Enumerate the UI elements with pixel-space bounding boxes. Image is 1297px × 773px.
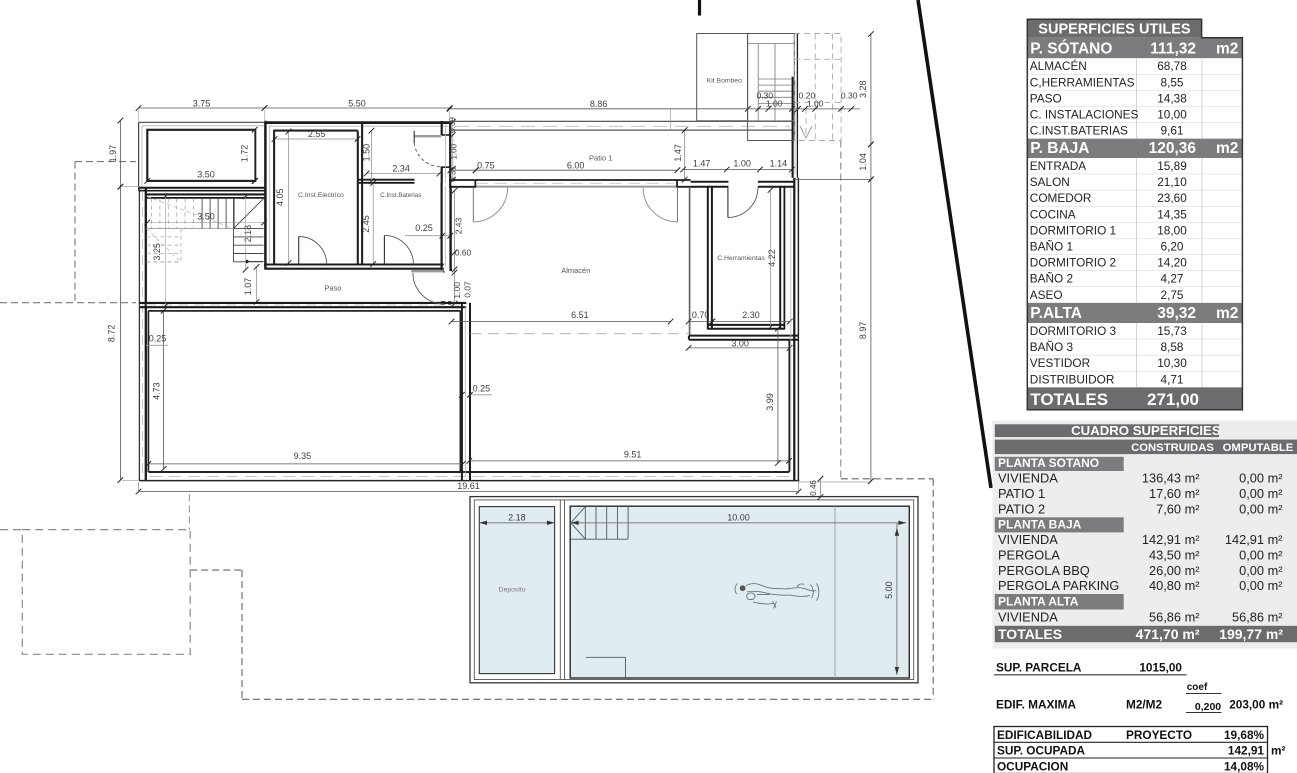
svg-text:SUP. OCUPADA: SUP. OCUPADA — [997, 744, 1086, 758]
svg-text:DISTRIBUIDOR: DISTRIBUIDOR — [1030, 372, 1115, 386]
svg-text:0.25: 0.25 — [149, 334, 167, 344]
svg-text:5.50: 5.50 — [348, 98, 366, 108]
svg-text:PERGOLA PARKING: PERGOLA PARKING — [998, 578, 1119, 593]
svg-text:TOTALES: TOTALES — [998, 626, 1062, 642]
svg-text:C.Inst.Electrico: C.Inst.Electrico — [298, 192, 344, 199]
svg-text:0.30: 0.30 — [841, 91, 858, 101]
svg-text:14,38: 14,38 — [1157, 91, 1187, 105]
svg-text:PATIO 2: PATIO 2 — [998, 501, 1045, 516]
svg-text:142,91: 142,91 — [1228, 744, 1265, 758]
svg-text:2.43: 2.43 — [453, 217, 463, 234]
svg-text:DORMITORIO 2: DORMITORIO 2 — [1030, 256, 1116, 270]
svg-text:4.22: 4.22 — [767, 249, 777, 267]
svg-text:1.47: 1.47 — [693, 158, 711, 168]
svg-text:4.05: 4.05 — [275, 188, 285, 206]
svg-text:40,80 m²: 40,80 m² — [1149, 578, 1200, 593]
svg-text:DORMITORIO 1: DORMITORIO 1 — [1030, 223, 1116, 237]
svg-text:2,75: 2,75 — [1161, 288, 1184, 302]
svg-text:VIVIENDA: VIVIENDA — [998, 471, 1058, 486]
svg-text:EDIF. MAXIMA: EDIF. MAXIMA — [996, 698, 1076, 712]
svg-text:471,70 m²: 471,70 m² — [1136, 626, 1200, 642]
svg-text:8.97: 8.97 — [858, 322, 868, 340]
svg-text:Almacén: Almacén — [561, 266, 590, 275]
svg-text:4,71: 4,71 — [1161, 372, 1184, 386]
svg-text:ASEO: ASEO — [1030, 288, 1063, 302]
svg-text:m2: m2 — [1216, 140, 1238, 157]
svg-text:1.00: 1.00 — [449, 143, 458, 159]
svg-text:0,00 m²: 0,00 m² — [1239, 471, 1283, 486]
svg-text:43,50 m²: 43,50 m² — [1149, 547, 1200, 562]
svg-text:56,86 m²: 56,86 m² — [1149, 610, 1200, 625]
svg-text:7,60 m²: 7,60 m² — [1156, 501, 1200, 516]
svg-text:3.25: 3.25 — [152, 243, 162, 261]
svg-text:10.00: 10.00 — [727, 512, 750, 522]
svg-text:26,00 m²: 26,00 m² — [1149, 563, 1200, 578]
svg-text:14,20: 14,20 — [1157, 256, 1187, 270]
svg-text:P. SÓTANO: P. SÓTANO — [1030, 39, 1112, 57]
svg-text:4,27: 4,27 — [1161, 272, 1184, 286]
svg-text:COCINA: COCINA — [1030, 207, 1076, 221]
svg-text:PLANTA BAJA: PLANTA BAJA — [998, 518, 1082, 532]
svg-text:1.47: 1.47 — [673, 144, 683, 162]
svg-text:Paso: Paso — [324, 284, 341, 293]
svg-text:C,HERRAMIENTAS: C,HERRAMIENTAS — [1030, 75, 1135, 89]
svg-text:2.30: 2.30 — [742, 310, 760, 320]
svg-text:2.45: 2.45 — [361, 215, 371, 233]
svg-text:SALON: SALON — [1030, 175, 1070, 189]
svg-text:56,86 m²: 56,86 m² — [1232, 610, 1283, 625]
svg-text:PATIO 1: PATIO 1 — [998, 486, 1045, 501]
svg-text:6.51: 6.51 — [571, 310, 589, 320]
svg-text:BAÑO 3: BAÑO 3 — [1030, 340, 1074, 354]
svg-text:P.ALTA: P.ALTA — [1030, 305, 1082, 322]
svg-text:0.70: 0.70 — [692, 310, 710, 320]
svg-text:m2: m2 — [1216, 305, 1238, 322]
svg-text:coef: coef — [1187, 682, 1208, 693]
svg-text:120,36: 120,36 — [1149, 140, 1197, 157]
svg-text:1.72: 1.72 — [240, 145, 250, 163]
svg-text:PROYECTO: PROYECTO — [1126, 728, 1192, 742]
svg-text:9.51: 9.51 — [624, 449, 642, 459]
svg-text:3.00: 3.00 — [731, 339, 749, 349]
svg-text:0.07: 0.07 — [462, 281, 472, 298]
svg-text:10,30: 10,30 — [1157, 356, 1187, 370]
svg-text:8,58: 8,58 — [1161, 340, 1184, 354]
svg-text:P. BAJA: P. BAJA — [1030, 140, 1089, 157]
svg-text:Deposito: Deposito — [499, 586, 526, 593]
svg-text:3.99: 3.99 — [765, 393, 775, 411]
svg-text:68,78: 68,78 — [1157, 59, 1187, 73]
svg-text:m²: m² — [1271, 744, 1285, 758]
svg-text:3.75: 3.75 — [193, 98, 211, 108]
svg-text:VESTIDOR: VESTIDOR — [1030, 356, 1090, 370]
svg-text:TOTALES: TOTALES — [1030, 390, 1108, 409]
svg-text:17,60 m²: 17,60 m² — [1149, 486, 1200, 501]
svg-text:SUP. PARCELA: SUP. PARCELA — [996, 661, 1082, 675]
svg-text:203,00 m²: 203,00 m² — [1229, 698, 1283, 712]
svg-text:1015,00: 1015,00 — [1139, 661, 1182, 675]
svg-text:5.00: 5.00 — [884, 581, 894, 599]
svg-text:EDIFICABILIDAD: EDIFICABILIDAD — [997, 728, 1093, 742]
svg-text:2.18: 2.18 — [508, 512, 526, 522]
svg-text:39,32: 39,32 — [1157, 305, 1196, 322]
svg-text:0.60: 0.60 — [455, 248, 472, 258]
svg-text:C.Herramientas: C.Herramientas — [717, 255, 765, 262]
svg-text:0,00 m²: 0,00 m² — [1239, 486, 1283, 501]
svg-text:ALMACÉN: ALMACÉN — [1030, 59, 1087, 73]
svg-text:VIVIENDA: VIVIENDA — [998, 532, 1058, 547]
svg-text:18,00: 18,00 — [1157, 223, 1187, 237]
svg-text:8.72: 8.72 — [107, 325, 117, 343]
svg-text:0.25: 0.25 — [473, 384, 491, 394]
svg-text:23,60: 23,60 — [1157, 191, 1187, 205]
svg-text:111,32: 111,32 — [1150, 40, 1196, 57]
svg-text:2.18: 2.18 — [243, 225, 253, 243]
svg-text:PERGOLA BBQ: PERGOLA BBQ — [998, 563, 1090, 578]
svg-text:0.25: 0.25 — [415, 223, 433, 233]
svg-text:C.INST.BATERIAS: C.INST.BATERIAS — [1030, 124, 1128, 138]
svg-text:VIVIENDA: VIVIENDA — [998, 610, 1058, 625]
svg-text:8,55: 8,55 — [1161, 75, 1184, 89]
svg-text:1.00: 1.00 — [766, 99, 783, 109]
svg-text:19,68%: 19,68% — [1224, 728, 1265, 742]
svg-text:PLANTA SOTANO: PLANTA SOTANO — [998, 456, 1099, 470]
svg-text:C. INSTALACIONES: C. INSTALACIONES — [1030, 108, 1139, 122]
svg-text:PASO: PASO — [1030, 91, 1062, 105]
svg-text:0,00 m²: 0,00 m² — [1239, 578, 1283, 593]
svg-text:1.04: 1.04 — [858, 153, 868, 171]
svg-text:DORMITORIO 3: DORMITORIO 3 — [1030, 324, 1117, 338]
svg-text:0,200: 0,200 — [1195, 701, 1221, 713]
svg-text:4.73: 4.73 — [151, 382, 161, 400]
svg-text:15,73: 15,73 — [1157, 324, 1187, 338]
svg-text:CUADRO SUPERFICIES: CUADRO SUPERFICIES — [1071, 423, 1221, 438]
svg-text:ENTRADA: ENTRADA — [1030, 159, 1087, 173]
svg-text:C.Inst.Baterias: C.Inst.Baterias — [380, 192, 421, 199]
svg-text:0.75: 0.75 — [477, 160, 495, 170]
svg-text:0,00 m²: 0,00 m² — [1239, 563, 1283, 578]
svg-text:0,00 m²: 0,00 m² — [1239, 547, 1283, 562]
svg-text:M2/M2: M2/M2 — [1126, 698, 1162, 712]
svg-text:Patio 1: Patio 1 — [589, 153, 612, 162]
svg-text:CONSTRUIDAS: CONSTRUIDAS — [1131, 442, 1214, 454]
svg-text:1.00: 1.00 — [452, 282, 462, 299]
svg-text:m2: m2 — [1216, 40, 1238, 57]
svg-text:21,10: 21,10 — [1157, 175, 1187, 189]
svg-text:1.14: 1.14 — [770, 158, 788, 168]
svg-text:142,91 m²: 142,91 m² — [1225, 532, 1283, 547]
svg-text:1.97: 1.97 — [108, 145, 118, 163]
svg-text:3.28: 3.28 — [858, 80, 868, 98]
svg-text:3.50: 3.50 — [197, 169, 215, 179]
svg-text:136,43 m²: 136,43 m² — [1142, 471, 1200, 486]
svg-text:6.00: 6.00 — [567, 160, 585, 170]
svg-text:3.50: 3.50 — [197, 211, 215, 221]
svg-text:15,89: 15,89 — [1157, 159, 1187, 173]
svg-text:1.07: 1.07 — [243, 278, 253, 296]
svg-text:1.00: 1.00 — [733, 158, 751, 168]
svg-text:1.00: 1.00 — [807, 99, 824, 109]
svg-text:199,77 m²: 199,77 m² — [1219, 626, 1283, 642]
svg-text:14,08%: 14,08% — [1224, 759, 1265, 773]
svg-text:Kit Bombeo: Kit Bombeo — [707, 78, 742, 85]
svg-text:PLANTA ALTA: PLANTA ALTA — [998, 595, 1079, 609]
svg-text:SUPERFICIES UTILES: SUPERFICIES UTILES — [1038, 22, 1191, 38]
svg-text:COMEDOR: COMEDOR — [1030, 191, 1092, 205]
svg-text:271,00: 271,00 — [1147, 390, 1199, 409]
svg-text:8.86: 8.86 — [590, 99, 608, 109]
svg-text:OMPUTABLE: OMPUTABLE — [1223, 442, 1294, 454]
svg-text:10,00: 10,00 — [1157, 108, 1187, 122]
svg-text:14,35: 14,35 — [1157, 207, 1187, 221]
svg-text:9.35: 9.35 — [294, 451, 312, 461]
svg-text:BAÑO 2: BAÑO 2 — [1030, 272, 1073, 286]
svg-text:1.50: 1.50 — [362, 144, 372, 162]
svg-text:6,20: 6,20 — [1161, 240, 1184, 254]
svg-text:2.34: 2.34 — [392, 163, 410, 173]
svg-text:0,00 m²: 0,00 m² — [1239, 501, 1283, 516]
svg-text:BAÑO 1: BAÑO 1 — [1030, 240, 1073, 254]
svg-text:142,91 m²: 142,91 m² — [1142, 532, 1200, 547]
svg-text:2.55: 2.55 — [308, 129, 326, 139]
svg-text:PERGOLA: PERGOLA — [998, 547, 1060, 562]
svg-text:9,61: 9,61 — [1161, 124, 1184, 138]
svg-text:0.46: 0.46 — [809, 480, 818, 496]
svg-text:19.61: 19.61 — [457, 481, 480, 491]
svg-text:OCUPACION: OCUPACION — [997, 759, 1068, 773]
